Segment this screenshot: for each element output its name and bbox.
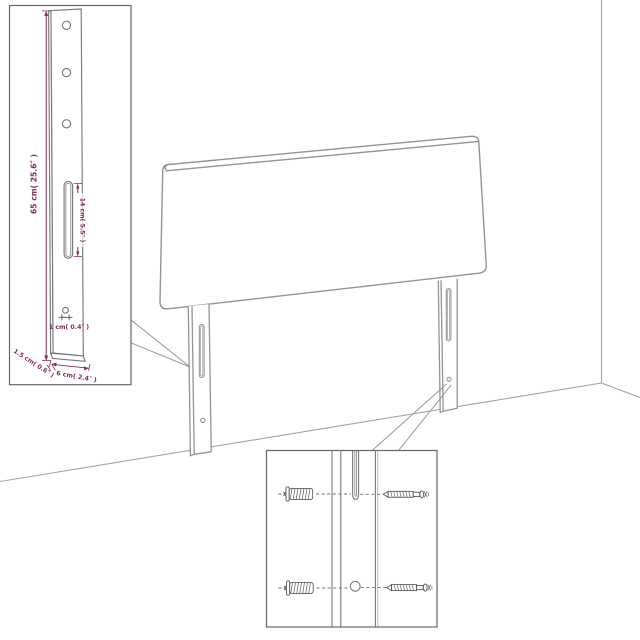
left-leg-slot (199, 325, 204, 378)
headboard-panel (160, 136, 486, 309)
screw-icon-bottom (387, 584, 432, 591)
leader-line-hole-to-hardware-inset-right (399, 385, 452, 451)
wall-plug-icon-top (283, 487, 312, 501)
post-keyhole (63, 307, 69, 313)
slot-dimension-label: 14 cm( 5.5″ ) (79, 198, 86, 243)
leader-line-inset-to-left-leg-lower (131, 343, 190, 367)
right-leg-hole (447, 377, 451, 381)
leader-line-hole-to-hardware-inset-left (372, 384, 447, 451)
hardware-detail-inset (267, 451, 438, 628)
product-diagram-canvas: 65 cm( 25.6″ ) 14 cm( 5.5″ ) 1 cm( 0.4″ … (0, 0, 640, 640)
floor-line-right (602, 383, 640, 398)
left-leg-hole (201, 418, 205, 422)
leader-line-inset-to-left-leg-upper (131, 320, 190, 367)
keyhole-dimension-label: 1 cm( 0.4″ ) (49, 324, 89, 331)
headboard-outline (160, 136, 486, 309)
left-leg (188, 304, 211, 456)
post-hole-bottom (62, 120, 70, 128)
callout-leader-lines (131, 320, 452, 451)
post-hole-top (62, 21, 70, 29)
headboard-assembly-diagram: 65 cm( 25.6″ ) 14 cm( 5.5″ ) 1 cm( 0.4″ … (0, 0, 640, 640)
hardware-inset-frame (267, 451, 438, 628)
screw-icon-top (383, 491, 428, 498)
right-leg (438, 279, 457, 413)
leg-detail-inset: 65 cm( 25.6″ ) 14 cm( 5.5″ ) 1 cm( 0.4″ … (10, 6, 132, 385)
wall-plug-icon-bottom (284, 581, 313, 595)
post-slot (64, 182, 73, 259)
right-leg-slot (446, 289, 451, 342)
leg-detail-post (49, 9, 86, 361)
height-dimension-label: 65 cm( 25.6″ ) (30, 154, 39, 214)
post-hole-middle (62, 69, 70, 77)
